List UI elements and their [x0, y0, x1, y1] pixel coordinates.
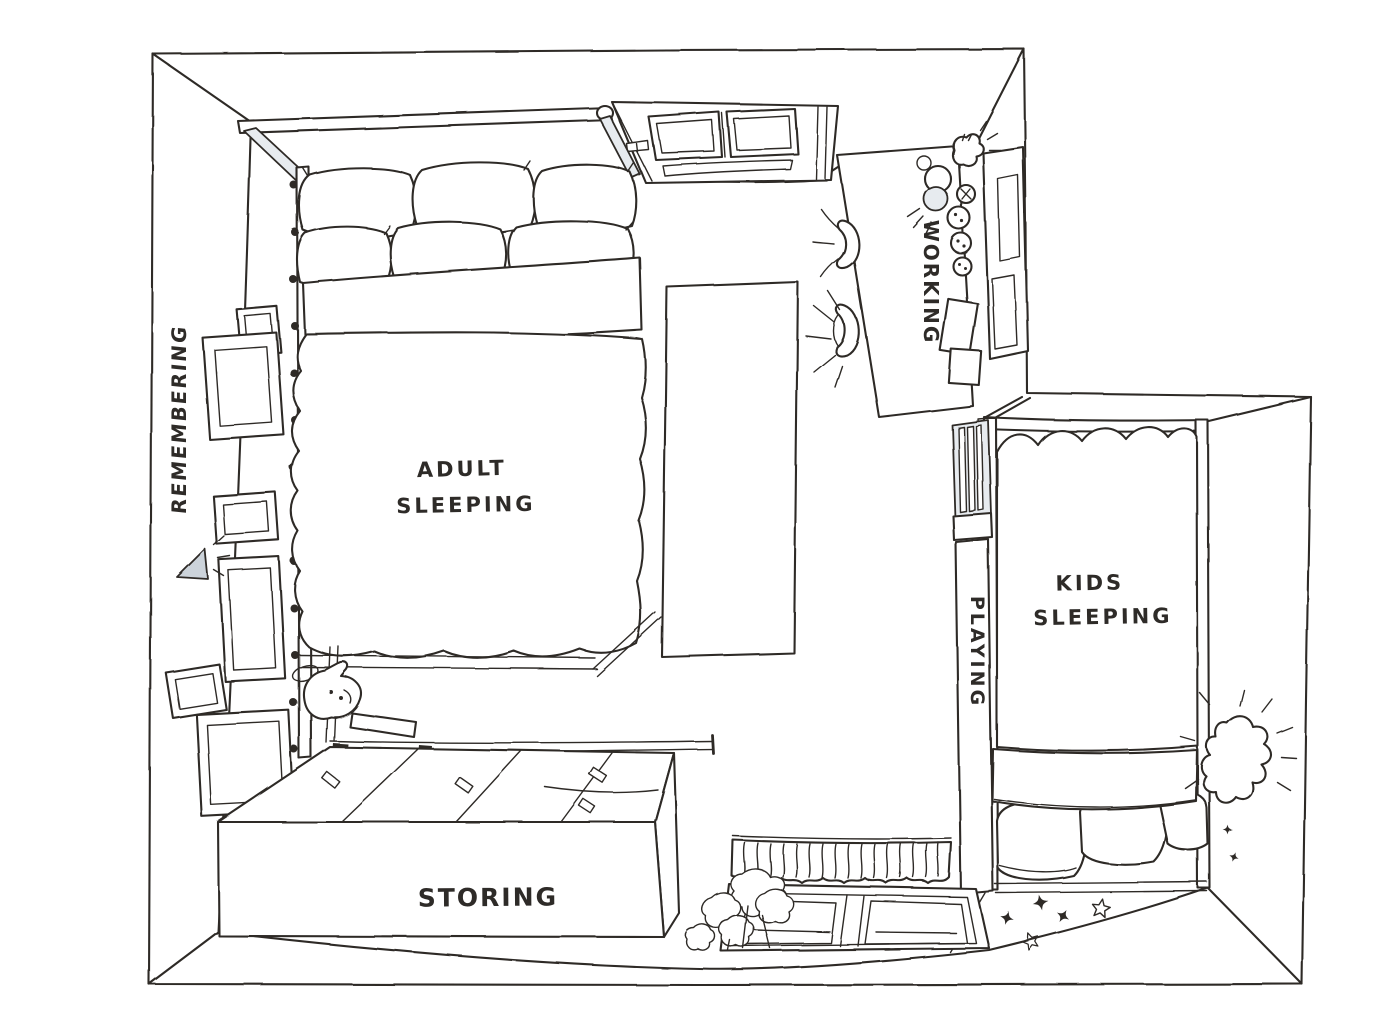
line-art: [149, 49, 1311, 985]
north-window: [612, 102, 838, 183]
sketch-svg: REMEMBERING ADULT SLEEPING WORKING KIDS …: [0, 0, 1400, 1023]
corner-bottom-right: [1208, 888, 1302, 984]
paper-sheet: [949, 349, 981, 385]
label-playing: PLAYING: [966, 596, 988, 708]
label-working: WORKING: [919, 220, 943, 345]
window-handle-mark: [637, 144, 638, 152]
star-icon: [1053, 906, 1072, 925]
chest-front: [218, 822, 664, 937]
canopy-left-diagonal: [984, 397, 1030, 419]
pet-plank: [350, 713, 416, 737]
ladder-foot: [953, 513, 992, 540]
wall-lamp-icon: [177, 549, 208, 579]
pet-eye: [329, 690, 333, 694]
night-lamp-icon: [1201, 716, 1270, 803]
star-icon: [998, 909, 1015, 926]
playing-divider: [956, 539, 993, 894]
desk-bowl: [951, 233, 971, 253]
bowl-dot: [960, 219, 963, 222]
desk-bowl: [948, 207, 970, 229]
picture-frame: [166, 664, 227, 718]
ladder-slat: [958, 427, 966, 512]
window-pane: [649, 112, 722, 160]
corner-top-right: [974, 49, 1024, 147]
label-remembering: REMEMBERING: [167, 323, 191, 515]
work-area: [806, 121, 1028, 417]
label-adult-line2: SLEEPING: [396, 492, 536, 518]
star-outline-icon: [1021, 931, 1042, 951]
desk-chair: [806, 291, 859, 387]
kids-blanket-fold: [992, 749, 1197, 809]
wall-pinboard: [983, 147, 1028, 359]
corner-kids-top-right: [1207, 397, 1311, 422]
desk-lamp-icon: [924, 187, 948, 211]
label-storing: STORING: [418, 882, 559, 912]
bowl-dot: [958, 263, 961, 266]
label-kids-line2: SLEEPING: [1033, 604, 1173, 630]
pet-body: [303, 662, 360, 719]
room-plan-sketch: REMEMBERING ADULT SLEEPING WORKING KIDS …: [0, 0, 1400, 1023]
track-end: [712, 735, 713, 753]
south-window: [685, 836, 989, 951]
bowl-dot: [956, 239, 959, 242]
pet-eye: [339, 696, 343, 700]
corner-top-left: [153, 54, 251, 122]
bowl-dot: [964, 267, 967, 270]
ladder-slat: [967, 426, 975, 511]
corner-bottom-left: [149, 932, 218, 984]
frame-outer: [166, 664, 227, 718]
kids-bed-bottom-rail: [995, 882, 1207, 893]
bowl-dot: [954, 213, 957, 216]
bedside-rug: [662, 282, 798, 657]
picture-frame: [203, 333, 284, 440]
bowl-dot: [962, 244, 965, 247]
adult-bed: [238, 106, 661, 758]
star-icon: [1031, 893, 1050, 912]
ladder-slat: [976, 425, 983, 510]
label-adult-line1: ADULT: [417, 456, 508, 482]
picture-frame: [219, 557, 285, 682]
label-kids-line1: KIDS: [1055, 570, 1124, 595]
star-icon: [1223, 825, 1233, 835]
star-outline-icon: [1091, 898, 1112, 918]
kids-area: [950, 397, 1296, 952]
valance-top-line: [733, 836, 951, 839]
desk-bowl: [953, 257, 971, 275]
star-icon: [1228, 851, 1241, 864]
headboard-rail: [238, 108, 612, 133]
